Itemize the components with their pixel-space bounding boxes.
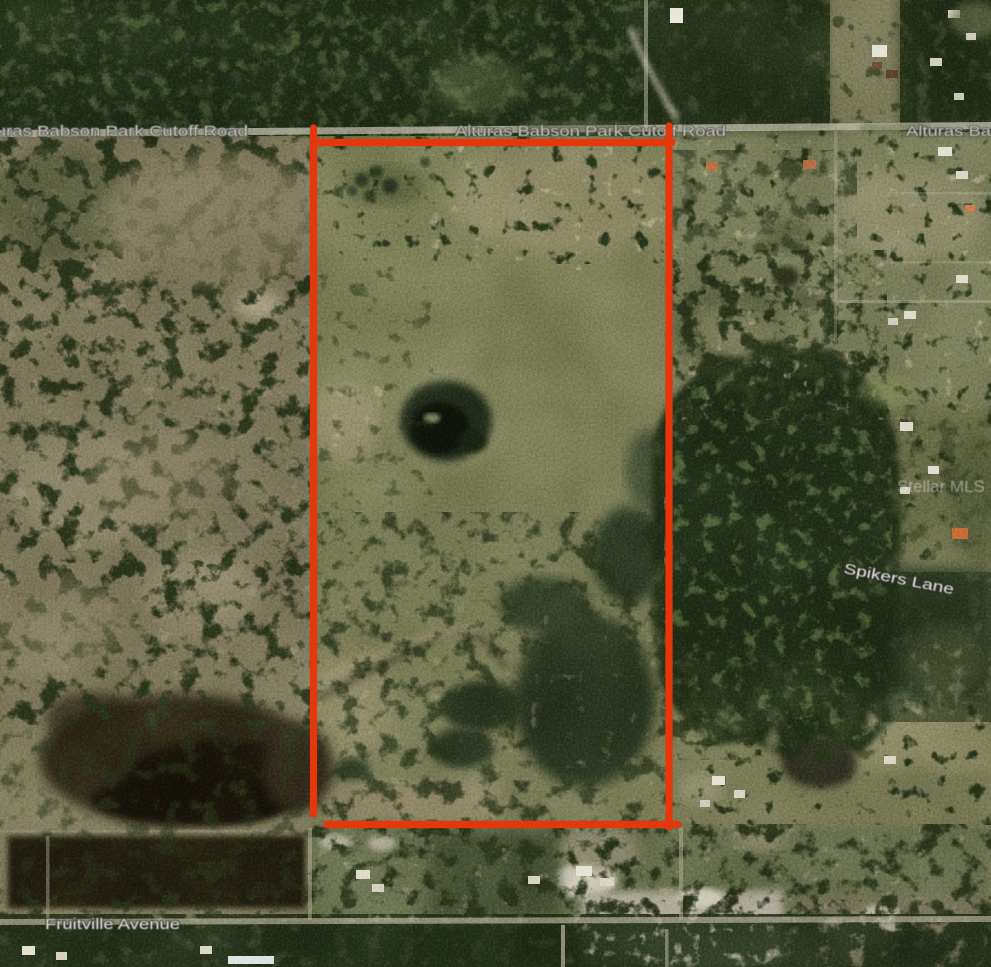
svg-text:Fruitville Avenue: Fruitville Avenue [45, 916, 180, 933]
svg-text:Stellar MLS: Stellar MLS [897, 477, 985, 496]
svg-text:Alturas Babson Park Cutoff Roa: Alturas Babson Park Cutoff Road [0, 123, 248, 140]
svg-text:Alturas Babson Park Cutoff Roa: Alturas Babson Park Cutoff Road [906, 123, 991, 140]
svg-text:Alturas Babson Park Cutoff Roa: Alturas Babson Park Cutoff Road [455, 123, 726, 140]
